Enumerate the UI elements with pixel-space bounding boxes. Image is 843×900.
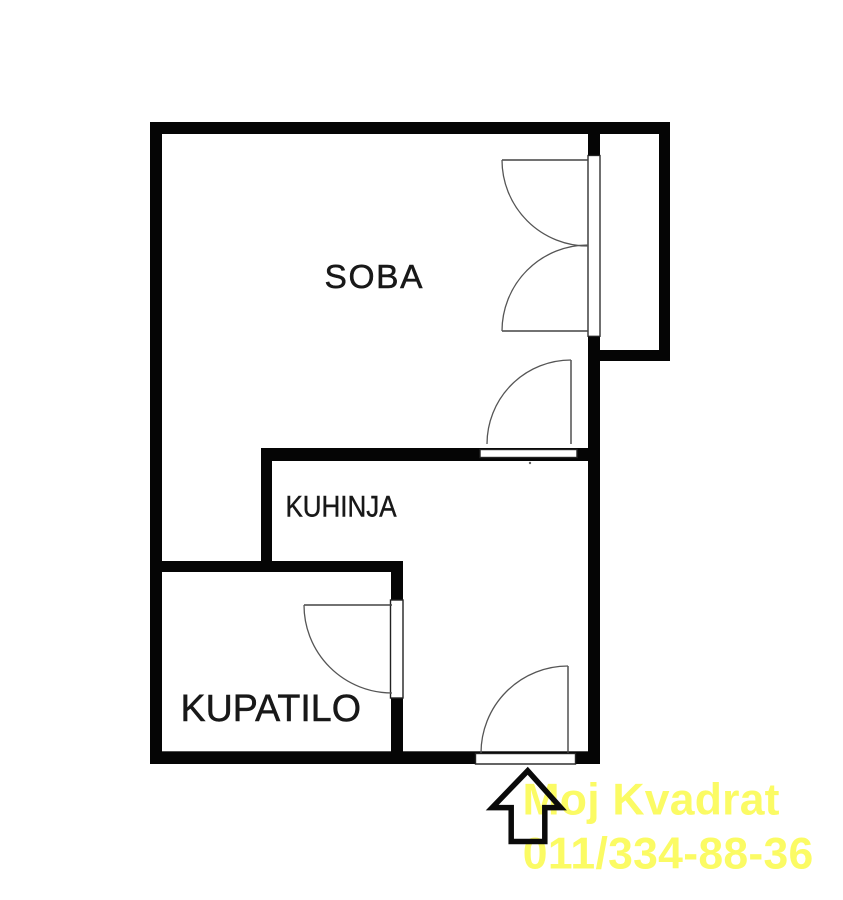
svg-text:KUHINJA: KUHINJA — [286, 491, 397, 524]
svg-text:011/334-88-36: 011/334-88-36 — [523, 830, 814, 879]
svg-text:SOBA: SOBA — [325, 259, 424, 296]
svg-text:Moj Kvadrat: Moj Kvadrat — [523, 776, 780, 825]
svg-text:KUPATILO: KUPATILO — [181, 688, 362, 730]
